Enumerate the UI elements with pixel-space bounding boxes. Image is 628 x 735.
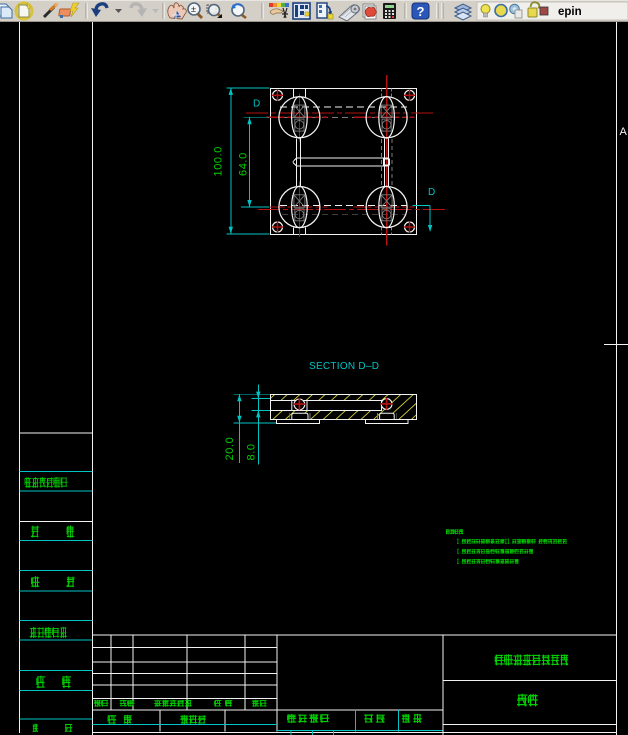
svg-text:SECTION D–D: SECTION D–D <box>309 361 379 372</box>
svg-text:D: D <box>428 187 435 198</box>
svg-text:A: A <box>620 126 628 138</box>
svg-text:64.0: 64.0 <box>237 152 249 176</box>
svg-text:8.0: 8.0 <box>246 443 258 460</box>
svg-text:D: D <box>253 99 260 110</box>
svg-text:±: ± <box>191 4 196 14</box>
svg-text:100.0: 100.0 <box>213 146 225 177</box>
svg-text:?: ? <box>417 4 425 19</box>
svg-text:20.0: 20.0 <box>224 437 236 461</box>
svg-text:epin: epin <box>558 6 582 18</box>
